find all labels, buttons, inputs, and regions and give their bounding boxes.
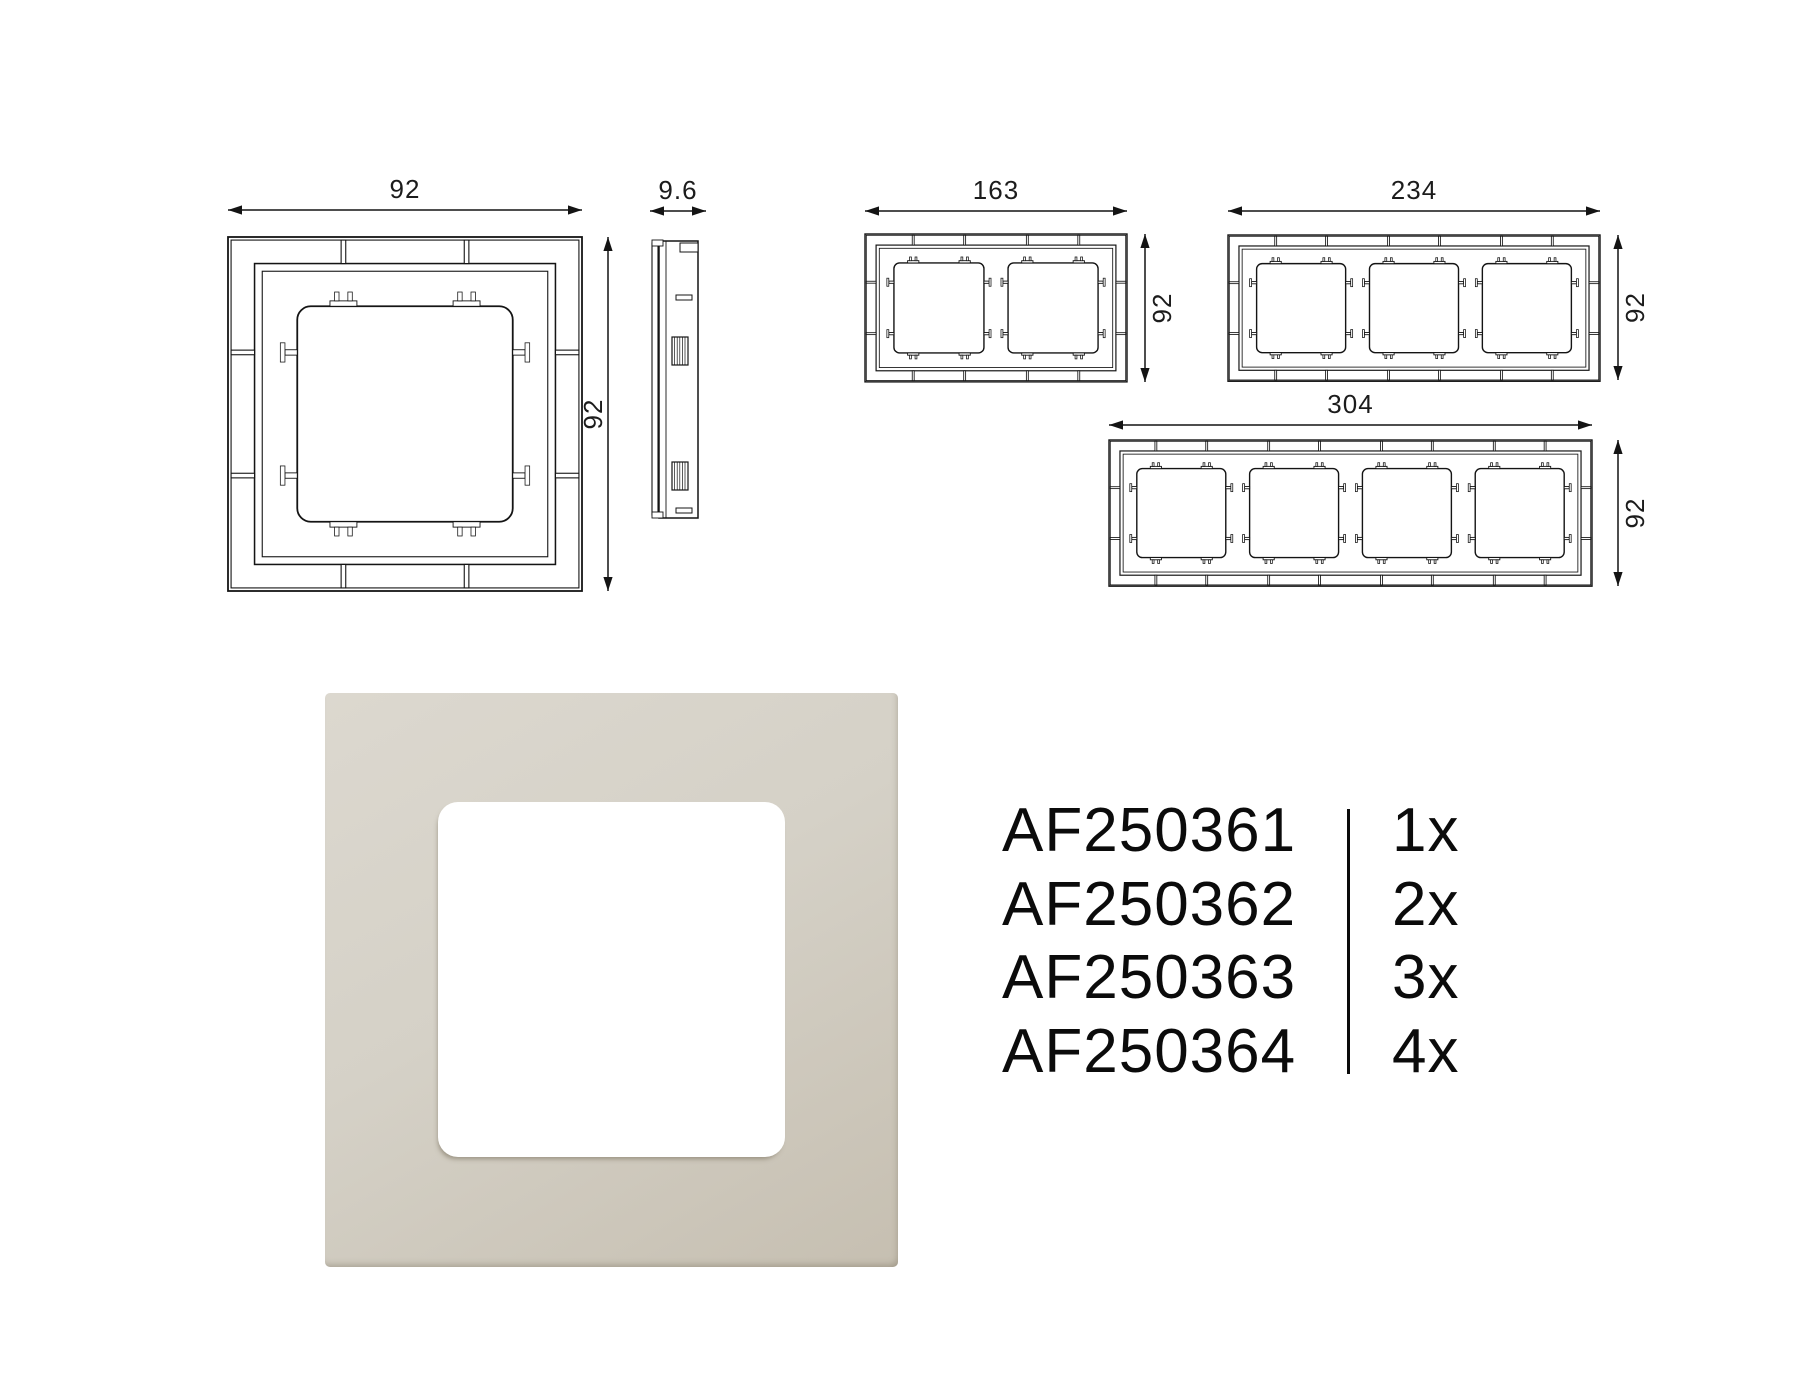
dimension-label: 9.6 (658, 175, 697, 205)
dim-4gang-width: 304 (1109, 389, 1592, 430)
product-qty: 4x (1392, 1015, 1459, 1089)
product-code: AF250363 (1002, 941, 1347, 1015)
product-code: AF250362 (1002, 868, 1347, 942)
table-row: AF250362 2x (1002, 868, 1459, 942)
frame-2gang-drawing (865, 234, 1127, 382)
dimension-label: 304 (1327, 389, 1373, 419)
table-row: AF250364 4x (1002, 1015, 1459, 1089)
table-row: AF250361 1x (1002, 794, 1459, 868)
single-frame-front-drawing (228, 237, 582, 591)
product-qty: 2x (1392, 868, 1459, 942)
dimension-label: 92 (1147, 293, 1177, 324)
frame-3gang-drawing (1228, 235, 1600, 381)
product-qty: 3x (1392, 941, 1459, 1015)
table-divider-line (1347, 809, 1350, 1074)
dimension-label: 234 (1391, 175, 1437, 205)
single-frame-side-drawing (652, 240, 698, 518)
dim-3gang-width: 234 (1228, 175, 1600, 216)
product-code: AF250361 (1002, 794, 1347, 868)
frame-4gang-drawing (1109, 440, 1592, 586)
dim-side-depth: 9.6 (650, 175, 706, 216)
dim-4gang-height: 92 (1613, 440, 1650, 586)
dimension-label: 92 (1620, 498, 1650, 529)
dim-single-height: 92 (578, 237, 613, 591)
product-table: AF250361 1x AF250362 2x AF250363 3x AF25… (1002, 794, 1459, 1088)
dim-3gang-height: 92 (1613, 235, 1650, 380)
dimension-label: 92 (1620, 292, 1650, 323)
product-qty: 1x (1392, 794, 1459, 868)
product-photo-frame (325, 693, 898, 1267)
dim-2gang-height: 92 (1140, 234, 1177, 382)
technical-drawings: 92929.6163922349230492 (0, 0, 1800, 1400)
dimension-label: 92 (390, 174, 421, 204)
datasheet-page: 92929.6163922349230492 AF250361 1x AF250… (0, 0, 1800, 1400)
product-code: AF250364 (1002, 1015, 1347, 1089)
product-photo-cutout (438, 802, 785, 1157)
table-row: AF250363 3x (1002, 941, 1459, 1015)
dim-2gang-width: 163 (865, 175, 1127, 216)
dim-single-width: 92 (228, 174, 582, 215)
dimension-label: 92 (578, 399, 608, 430)
dimension-label: 163 (973, 175, 1019, 205)
